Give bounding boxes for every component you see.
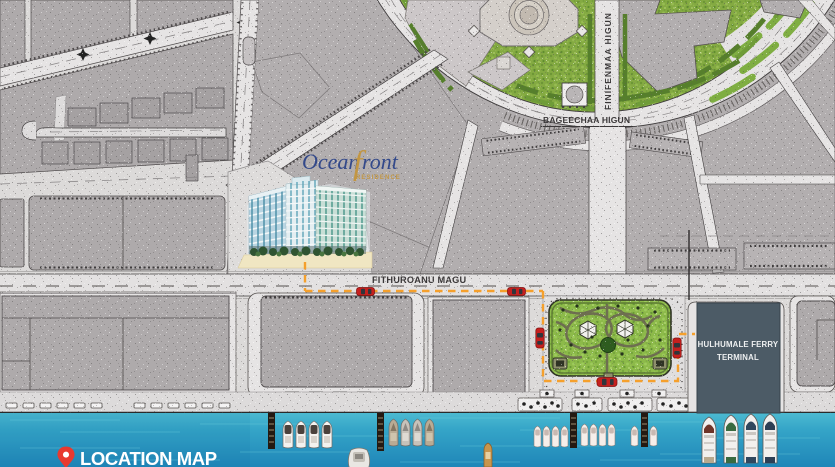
svg-text:HULHUMALE FERRY: HULHUMALE FERRY (698, 340, 779, 349)
svg-text:LOCATION MAP: LOCATION MAP (80, 448, 217, 467)
svg-text:TERMINAL: TERMINAL (717, 353, 759, 362)
svg-text:Ocean: Ocean (302, 149, 359, 174)
svg-text:RESIDENCE: RESIDENCE (356, 175, 401, 181)
svg-text:ront: ront (362, 149, 399, 174)
